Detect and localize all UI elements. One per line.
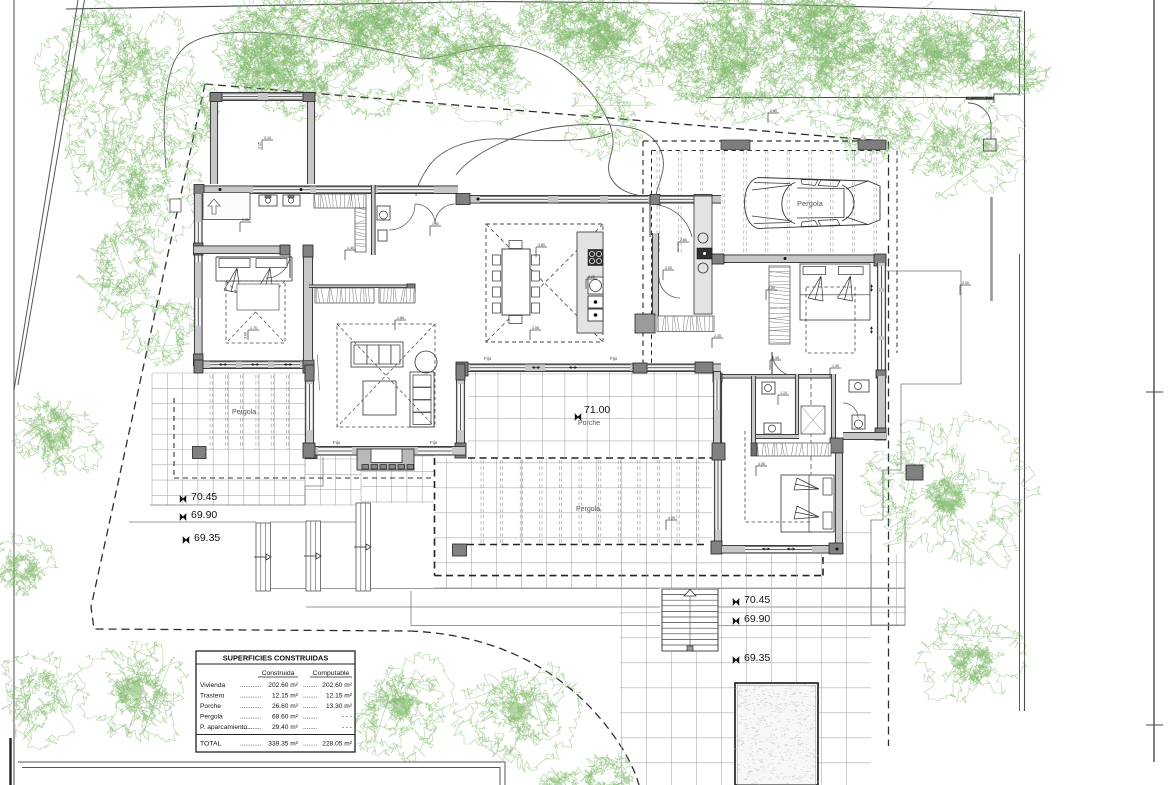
svg-text:2.80: 2.80	[770, 109, 777, 113]
svg-text:68.60 m²: 68.60 m²	[272, 714, 299, 721]
svg-text:........: ........	[303, 714, 317, 721]
svg-text:............: ............	[240, 703, 262, 710]
svg-text:1.40: 1.40	[347, 246, 354, 250]
svg-text:69.90: 69.90	[191, 509, 217, 521]
svg-text:1.76: 1.76	[250, 326, 257, 330]
svg-text:- - -: - - -	[342, 724, 352, 731]
svg-text:13.30 m²: 13.30 m²	[326, 703, 353, 710]
svg-text:339.35 m²: 339.35 m²	[268, 741, 298, 748]
svg-text:Fijo: Fijo	[333, 440, 341, 445]
svg-text:2.35: 2.35	[242, 218, 249, 222]
svg-text:........: ........	[303, 693, 317, 700]
svg-text:2.45: 2.45	[714, 334, 721, 338]
svg-text:69.90: 69.90	[744, 613, 770, 625]
svg-text:Fijo: Fijo	[484, 356, 492, 361]
svg-text:........: ........	[303, 703, 317, 710]
svg-text:Pergola: Pergola	[576, 506, 600, 513]
svg-text:1.40: 1.40	[432, 222, 439, 226]
svg-text:........: ........	[303, 724, 317, 731]
svg-text:71.00: 71.00	[584, 404, 610, 416]
svg-text:70.45: 70.45	[191, 491, 217, 503]
svg-text:3.15: 3.15	[258, 142, 262, 149]
svg-text:4.00: 4.00	[668, 516, 675, 520]
svg-text:Pergola: Pergola	[797, 199, 824, 208]
svg-text:3.80: 3.80	[538, 243, 545, 247]
svg-text:TOTAL: TOTAL	[200, 741, 221, 748]
svg-text:2.00: 2.00	[962, 281, 969, 285]
svg-text:12.15 m²: 12.15 m²	[272, 693, 299, 700]
svg-text:29.40 m²: 29.40 m²	[272, 724, 299, 731]
svg-text:............: ............	[240, 724, 262, 731]
svg-text:202.60 m²: 202.60 m²	[268, 682, 298, 689]
svg-text:69.35: 69.35	[194, 532, 220, 544]
svg-text:Fijo: Fijo	[610, 356, 618, 361]
svg-text:............: ............	[240, 693, 262, 700]
svg-text:........: ........	[303, 741, 317, 748]
svg-text:70.45: 70.45	[744, 594, 770, 606]
svg-text:............: ............	[240, 741, 262, 748]
svg-text:1.68: 1.68	[397, 316, 404, 320]
svg-text:3.08: 3.08	[532, 326, 539, 330]
svg-text:3.60: 3.60	[244, 332, 248, 339]
svg-text:228.05 m²: 228.05 m²	[322, 741, 352, 748]
svg-text:- - -: - - -	[342, 714, 352, 721]
svg-text:2.45: 2.45	[772, 356, 779, 360]
svg-text:Trastero: Trastero	[200, 693, 225, 700]
svg-text:26.60 m²: 26.60 m²	[272, 703, 299, 710]
svg-text:Porche: Porche	[200, 703, 221, 710]
svg-text:............: ............	[240, 714, 262, 721]
svg-text:4.20: 4.20	[588, 275, 595, 279]
svg-text:Vivienda: Vivienda	[200, 682, 226, 689]
svg-text:12.15 m²: 12.15 m²	[326, 693, 353, 700]
svg-text:Computable: Computable	[313, 670, 350, 677]
svg-text:3.10: 3.10	[264, 136, 271, 140]
svg-text:2.00: 2.00	[665, 266, 672, 270]
svg-text:4.06: 4.06	[758, 462, 765, 466]
svg-text:69.35: 69.35	[744, 652, 770, 664]
svg-text:............: ............	[240, 682, 262, 689]
svg-text:2.80: 2.80	[680, 238, 687, 242]
svg-text:1.30: 1.30	[832, 364, 839, 368]
svg-text:SUPERFICIES CONSTRUIDAS: SUPERFICIES CONSTRUIDAS	[223, 654, 329, 663]
svg-text:Pergola: Pergola	[200, 714, 223, 721]
svg-text:........: ........	[303, 682, 317, 689]
svg-text:2.80: 2.80	[768, 286, 775, 290]
svg-text:Porche: Porche	[578, 420, 600, 427]
svg-text:202.60 m²: 202.60 m²	[322, 682, 352, 689]
svg-text:Fijo: Fijo	[430, 440, 438, 445]
svg-text:Construida: Construida	[262, 670, 295, 677]
svg-text:Pergola: Pergola	[232, 409, 256, 416]
svg-text:1.10: 1.10	[780, 391, 787, 395]
